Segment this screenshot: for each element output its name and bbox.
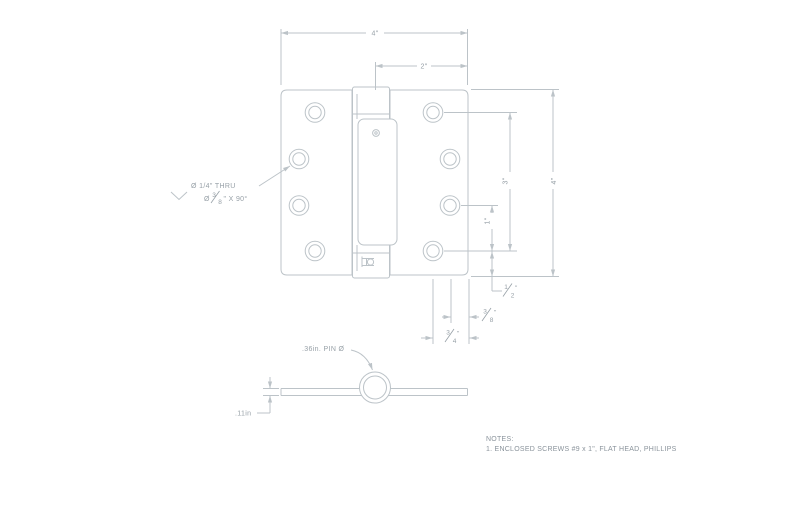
dim-hole-pitch-label: 1" [485, 217, 492, 224]
dim-hole-span-label: 3" [503, 177, 510, 184]
countersink-icon [171, 192, 187, 200]
hole-callout: Ø 1/4" THRU Ø 3 8 " X 90° [191, 183, 248, 206]
dim-three-eighths-label: 3 8 " [482, 308, 497, 324]
dim-three-quarters-label: 3 4 " [445, 329, 460, 345]
svg-text:Ø: Ø [204, 196, 210, 203]
svg-text:8: 8 [490, 317, 494, 324]
svg-text:8: 8 [218, 199, 222, 206]
notes-title: NOTES: [486, 436, 514, 443]
labels: 4" 2" 4" 3" 1" 1 2 " 3 8 " 3 4 " Ø 1/4" … [191, 31, 677, 454]
left-leaf-outline [281, 90, 352, 275]
svg-text:": " [457, 331, 460, 338]
dim-half-width-label: 2" [420, 64, 427, 71]
spring-cover [358, 119, 397, 245]
dim-width-label: 4" [371, 31, 378, 38]
svg-text:" X 90°: " X 90° [224, 195, 248, 203]
hole-callout-leader [259, 166, 290, 186]
thickness-label: .11in [235, 411, 251, 418]
svg-text:2: 2 [511, 293, 515, 300]
svg-text:": " [515, 285, 518, 292]
dim-thickness [257, 377, 279, 413]
bottom-pin-detail [362, 257, 374, 268]
dim-height-label: 4" [551, 177, 558, 184]
dim-half-inch-label: 1 2 " [503, 284, 518, 300]
svg-text:": " [494, 310, 497, 317]
svg-text:4: 4 [453, 338, 457, 345]
top-view [281, 87, 468, 278]
section-view [257, 350, 468, 413]
hole-callout-line1: Ø 1/4" THRU [191, 183, 236, 190]
notes-item-1: 1. ENCLOSED SCREWS #9 x 1", FLAT HEAD, P… [486, 446, 677, 453]
pin-callout-leader [351, 350, 373, 370]
hinge-technical-drawing: 4" 2" 4" 3" 1" 1 2 " 3 8 " 3 4 " Ø 1/4" … [0, 0, 800, 518]
pin-callout-label: .36in. PIN Ø [302, 346, 345, 353]
drawing-canvas: 4" 2" 4" 3" 1" 1 2 " 3 8 " 3 4 " Ø 1/4" … [0, 0, 800, 518]
knuckle-circle [360, 372, 391, 403]
